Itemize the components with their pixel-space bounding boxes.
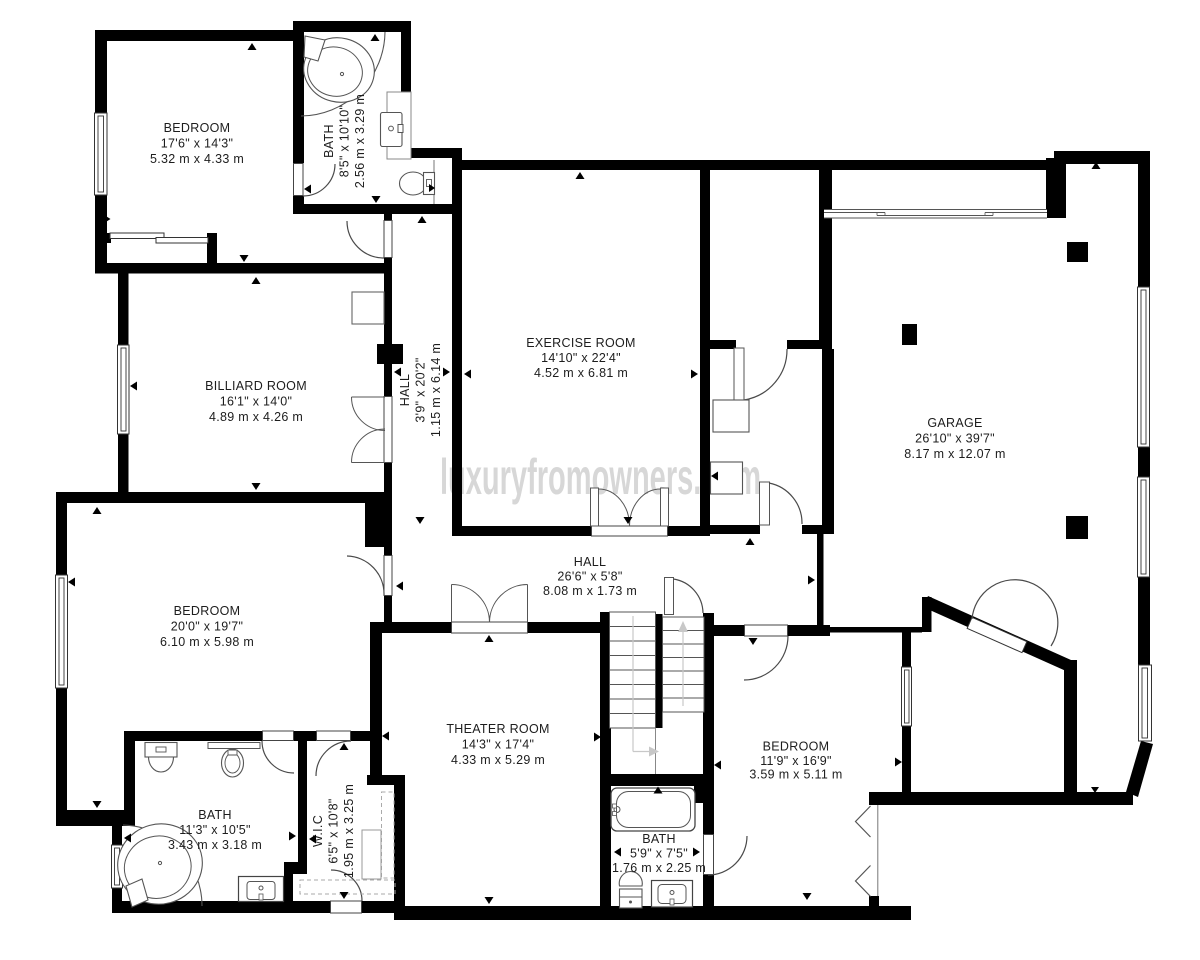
svg-text:BEDROOM17'6" x 14'3"5.32 m x 4: BEDROOM17'6" x 14'3"5.32 m x 4.33 m: [150, 121, 244, 166]
svg-text:THEATER ROOM14'3" x 17'4"4.33: THEATER ROOM14'3" x 17'4"4.33 m x 5.29 m: [446, 722, 549, 767]
svg-text:EXERCISE ROOM14'10" x 22'4"4.5: EXERCISE ROOM14'10" x 22'4"4.52 m x 6.81…: [526, 336, 635, 380]
svg-text:BEDROOM20'0" x 19'7"6.10 m x 5: BEDROOM20'0" x 19'7"6.10 m x 5.98 m: [160, 604, 254, 649]
svg-text:BILLIARD ROOM16'1" x 14'0"4.89: BILLIARD ROOM16'1" x 14'0"4.89 m x 4.26 …: [205, 379, 307, 424]
svg-text:BEDROOM11'9" x 16'9"3.59 m x 5: BEDROOM11'9" x 16'9"3.59 m x 5.11 m: [749, 740, 842, 782]
